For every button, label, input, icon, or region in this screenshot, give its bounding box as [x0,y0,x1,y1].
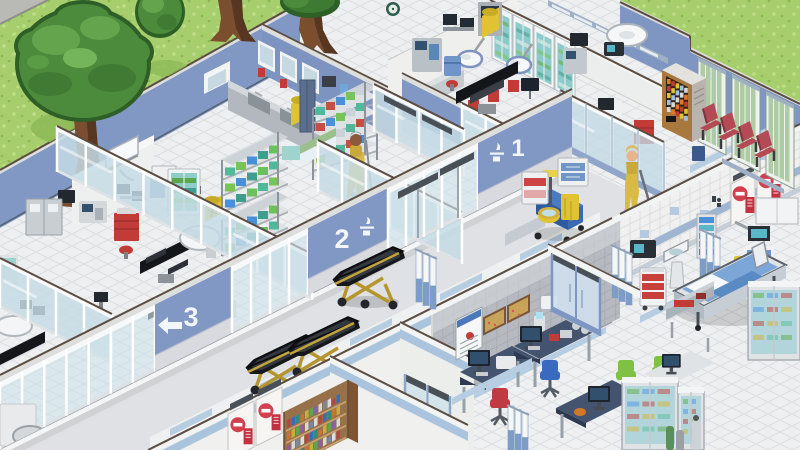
svg-text:2: 2 [334,224,349,254]
svg-text:3: 3 [183,302,198,332]
svg-text:1: 1 [511,135,524,162]
